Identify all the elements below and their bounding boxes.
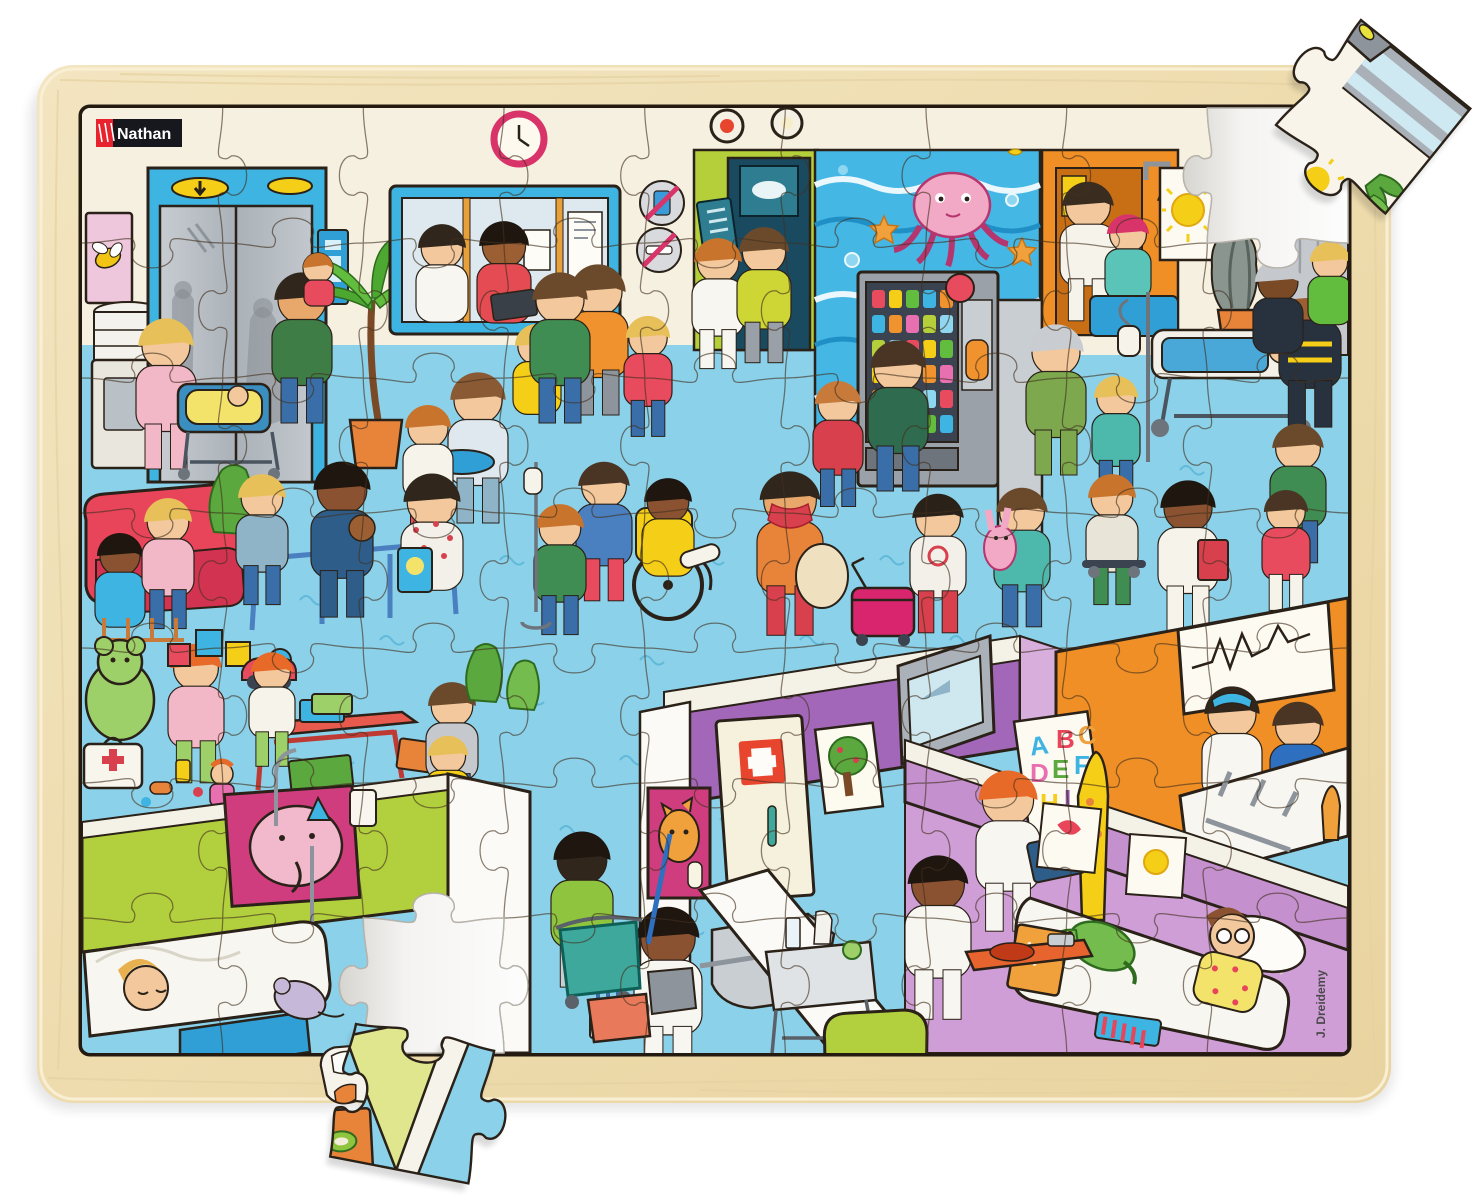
svg-text:J. Dreidemy: J. Dreidemy <box>1314 970 1328 1038</box>
svg-text:B: B <box>1056 724 1075 754</box>
svg-text:D: D <box>1030 758 1049 788</box>
svg-text:Nathan: Nathan <box>117 126 171 143</box>
